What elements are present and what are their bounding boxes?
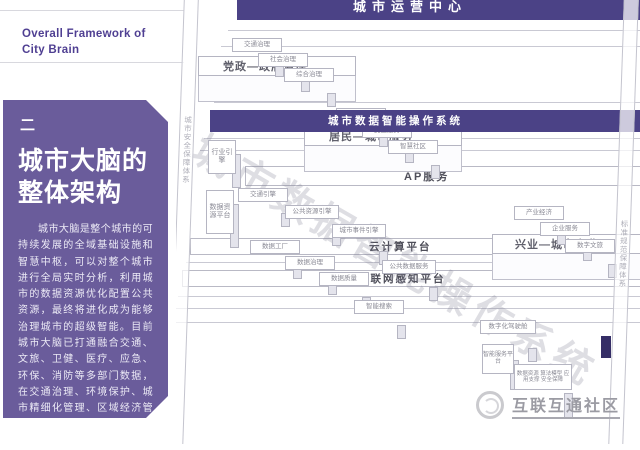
community-name: 互联互通社区 (512, 392, 620, 419)
iso-box-side (327, 93, 336, 107)
iso-box: 交通引擎 (238, 188, 288, 202)
pillar-left: 城市安全保障体系 (176, 0, 199, 444)
card-title-line2: 整体架构 (18, 177, 153, 209)
iso-box: 数字文旅 (565, 239, 615, 253)
slab-edge-line (176, 322, 640, 323)
section-marker: 二 (20, 114, 153, 135)
slab-edge-line (221, 46, 640, 47)
community-logo-icon (476, 391, 504, 419)
architecture-diagram: 城市数据智能操作系统 城市安全保障体系 标准规范保障体系 城市运营中心城市数据智… (176, 0, 640, 444)
page-title-line1: Overall Framework of (22, 26, 146, 42)
card-body: 城市大脑是整个城市的可持续发展的全域基础设施和智慧中枢，可以对整个城市进行全局实… (18, 222, 153, 450)
iso-box: 产业经济 (514, 206, 564, 220)
iso-box: 智能搜索 (354, 300, 404, 314)
iso-box-side (397, 325, 406, 339)
slab-edge-line (214, 102, 640, 103)
slab-edge-line (228, 30, 640, 31)
iso-box: 数字化驾驶舱 (480, 320, 536, 334)
pillar-right-label: 标准规范保障体系 (617, 220, 630, 288)
card-title-line1: 城市大脑的 (18, 145, 153, 177)
iso-box: 社会治理 (258, 53, 308, 67)
iso-box: 行业引擎 (208, 140, 236, 174)
header-divider (0, 62, 184, 63)
bar-end-cap (601, 336, 611, 358)
iso-box: 公共资源引擎 (285, 205, 339, 219)
iso-box: 数据资源 算法模型 应用支撑 安全保障 (514, 364, 572, 390)
iso-box: 交通治理 (232, 38, 282, 52)
iso-box-side (429, 287, 438, 301)
page-title-line2: City Brain (22, 42, 146, 58)
iso-box: 企业服务 (540, 222, 590, 236)
iso-box: 数据治理 (285, 256, 335, 270)
iso-box: 智能服务平台 (482, 344, 514, 374)
iso-box: 城市事件引擎 (332, 224, 386, 238)
iso-box-side (431, 165, 440, 179)
iso-box: 智慧社区 (388, 140, 438, 154)
iso-box: 数据工厂 (250, 240, 300, 254)
slab-edge-line (176, 308, 640, 309)
iso-box: 综合治理 (284, 68, 334, 82)
iso-box-side (528, 348, 537, 362)
top-divider (0, 10, 184, 11)
layer-bar-label: 城市运营中心 (237, 0, 640, 20)
iso-box: 数据资源平台 (206, 190, 234, 234)
page-title: Overall Framework of City Brain (22, 26, 146, 58)
layer-bar-label: 城市数据智能操作系统 (210, 110, 640, 132)
info-card: 二 城市大脑的 整体架构 城市大脑是整个城市的可持续发展的全域基础设施和智慧中枢… (3, 100, 168, 418)
community-watermark: 互联互通社区 (476, 391, 620, 419)
card-title: 城市大脑的 整体架构 (18, 145, 153, 209)
pillar-right: 标准规范保障体系 (608, 0, 639, 444)
iso-box: 数据质量 (319, 272, 369, 286)
pillar-left-label: 城市安全保障体系 (180, 116, 193, 184)
iso-box: 公共数据服务 (382, 260, 436, 274)
